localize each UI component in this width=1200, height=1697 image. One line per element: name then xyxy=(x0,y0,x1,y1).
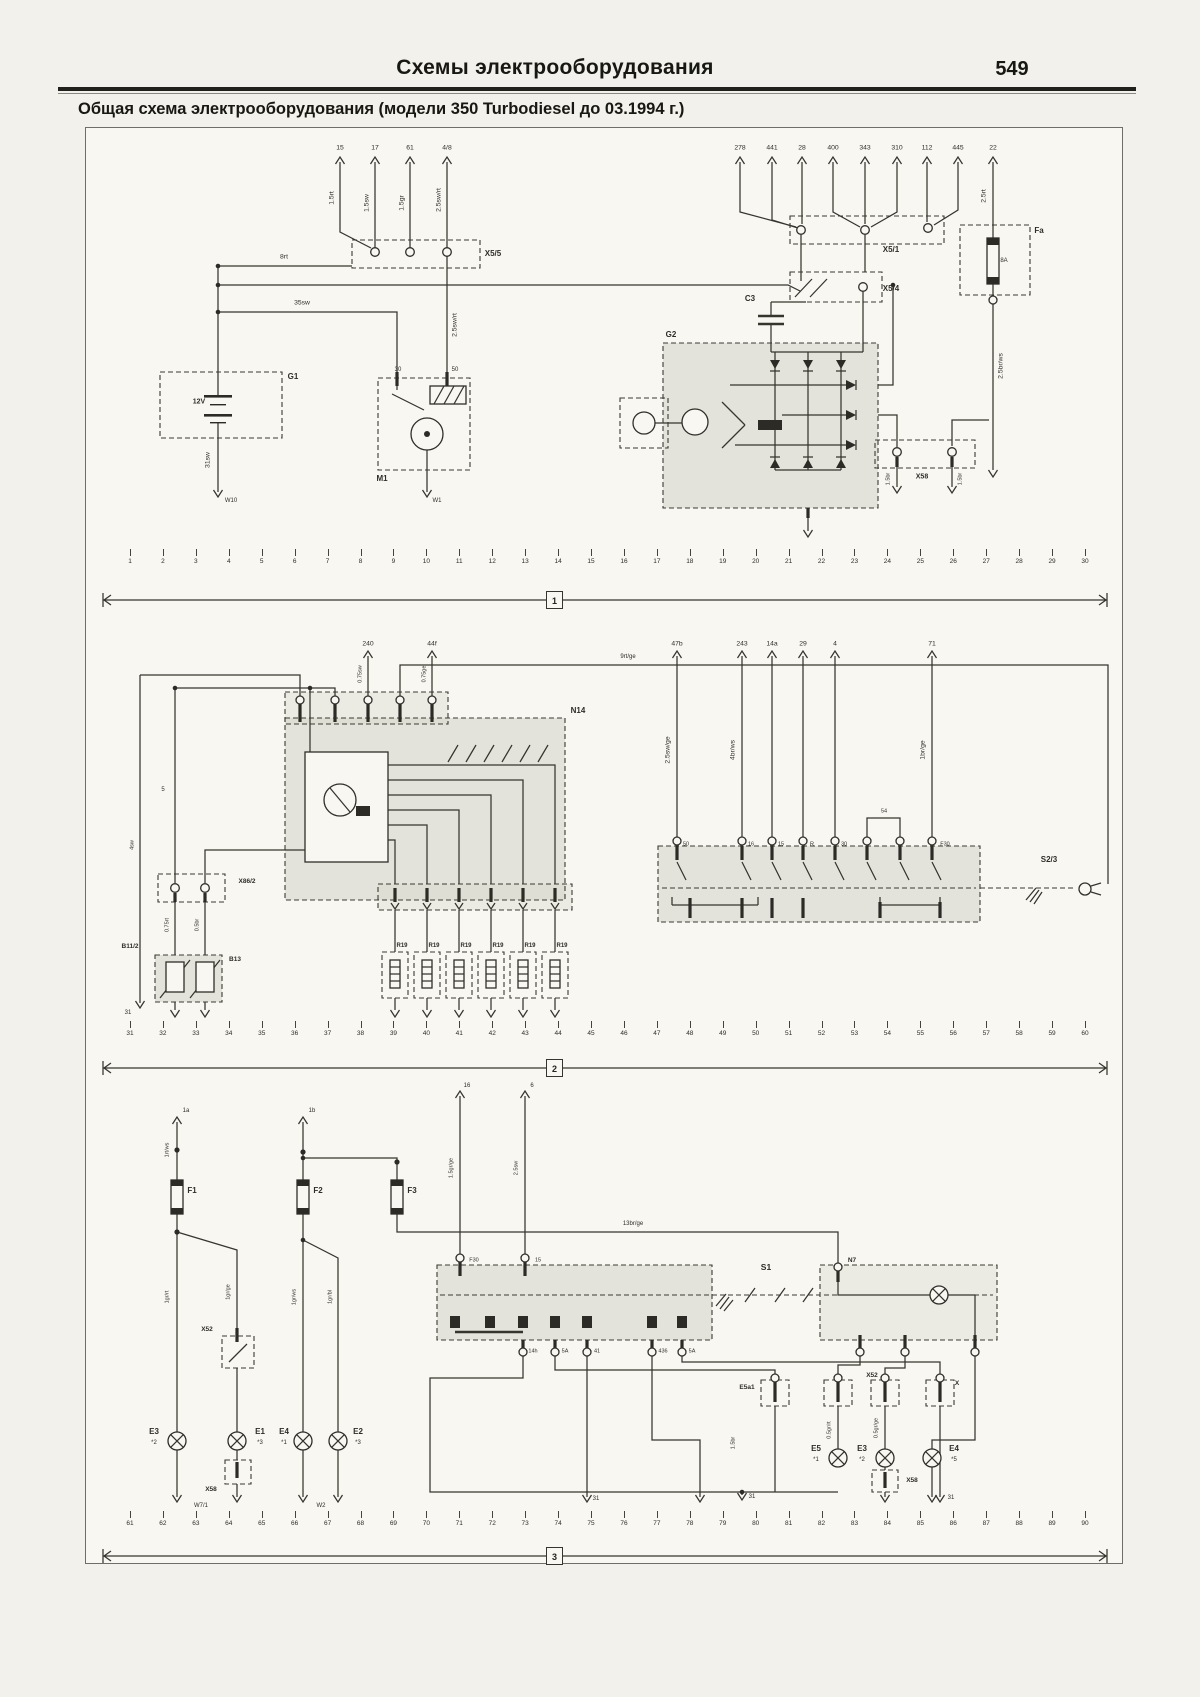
bus-tick xyxy=(756,1021,757,1028)
bus-number: 90 xyxy=(1081,1520,1088,1527)
bus-number: 55 xyxy=(917,1030,924,1037)
bus-number: 11 xyxy=(456,558,463,565)
bus-tick xyxy=(393,549,394,556)
bus-number: 12 xyxy=(489,558,496,565)
bus-number: 60 xyxy=(1081,1030,1088,1037)
bus-number: 67 xyxy=(324,1520,331,1527)
bus-number: 15 xyxy=(587,558,594,565)
bus-number: 16 xyxy=(620,558,627,565)
bus-tick xyxy=(1019,1021,1020,1028)
bus-number: 73 xyxy=(522,1520,529,1527)
bus-tick xyxy=(822,549,823,556)
bus-tick xyxy=(887,549,888,556)
bus-tick xyxy=(1052,1021,1053,1028)
bus-tick xyxy=(229,549,230,556)
bus-tick xyxy=(492,549,493,556)
bus-number: 1 xyxy=(128,558,132,565)
bus-number: 21 xyxy=(785,558,792,565)
bus-number: 77 xyxy=(653,1520,660,1527)
bus-tick xyxy=(459,1511,460,1518)
section-marker-2: 2 xyxy=(546,1059,563,1077)
bus-tick xyxy=(361,1021,362,1028)
bus-tick xyxy=(657,1021,658,1028)
bus-number: 78 xyxy=(686,1520,693,1527)
bus-number: 66 xyxy=(291,1520,298,1527)
bus-tick xyxy=(854,1511,855,1518)
bus-number: 62 xyxy=(159,1520,166,1527)
bus-tick xyxy=(854,1021,855,1028)
bus-tick xyxy=(328,1021,329,1028)
bus-tick xyxy=(558,1511,559,1518)
bus-number: 4 xyxy=(227,558,231,565)
bus-number: 22 xyxy=(818,558,825,565)
bus-tick xyxy=(591,1021,592,1028)
bus-number: 56 xyxy=(950,1030,957,1037)
bus-number: 76 xyxy=(620,1520,627,1527)
bus-number: 31 xyxy=(126,1030,133,1037)
bus-tick xyxy=(229,1021,230,1028)
wiring-diagram xyxy=(0,0,1200,1697)
bus-tick xyxy=(1052,1511,1053,1518)
bus-number: 58 xyxy=(1016,1030,1023,1037)
bus-number: 26 xyxy=(950,558,957,565)
bus-tick xyxy=(657,1511,658,1518)
bus-number: 74 xyxy=(554,1520,561,1527)
bus-tick xyxy=(789,549,790,556)
bus-number: 30 xyxy=(1081,558,1088,565)
section-marker-1: 1 xyxy=(546,591,563,609)
bus-tick xyxy=(591,549,592,556)
bus-number: 33 xyxy=(192,1030,199,1037)
bus-number: 14 xyxy=(554,558,561,565)
bus-tick xyxy=(459,1021,460,1028)
bus-number: 43 xyxy=(522,1030,529,1037)
bus-tick xyxy=(130,549,131,556)
bus-tick xyxy=(328,549,329,556)
bus-number: 2 xyxy=(161,558,165,565)
bus-number: 50 xyxy=(752,1030,759,1037)
bus-tick xyxy=(1019,549,1020,556)
bus-number: 9 xyxy=(392,558,396,565)
bus-number: 32 xyxy=(159,1030,166,1037)
bus-number: 47 xyxy=(653,1030,660,1037)
bus-tick xyxy=(295,549,296,556)
bus-number: 87 xyxy=(983,1520,990,1527)
bus-tick xyxy=(262,549,263,556)
bus-number: 34 xyxy=(225,1030,232,1037)
bus-tick xyxy=(295,1021,296,1028)
bus-number: 69 xyxy=(390,1520,397,1527)
bus-tick xyxy=(361,549,362,556)
bus-tick xyxy=(887,1511,888,1518)
bus-number: 18 xyxy=(686,558,693,565)
bus-strip-2: 3132333435363738394041424344454647484950… xyxy=(130,1021,1085,1043)
bus-number: 23 xyxy=(851,558,858,565)
bus-tick xyxy=(196,1511,197,1518)
bus-number: 29 xyxy=(1048,558,1055,565)
bus-tick xyxy=(459,549,460,556)
bus-number: 38 xyxy=(357,1030,364,1037)
bus-tick xyxy=(690,1511,691,1518)
bus-number: 37 xyxy=(324,1030,331,1037)
bus-tick xyxy=(756,549,757,556)
bus-tick xyxy=(723,1511,724,1518)
bus-number: 20 xyxy=(752,558,759,565)
bus-tick xyxy=(789,1511,790,1518)
section-marker-3: 3 xyxy=(546,1547,563,1565)
bus-number: 36 xyxy=(291,1030,298,1037)
bus-number: 85 xyxy=(917,1520,924,1527)
bus-tick xyxy=(426,1021,427,1028)
bus-tick xyxy=(986,1511,987,1518)
bus-number: 79 xyxy=(719,1520,726,1527)
bus-tick xyxy=(196,549,197,556)
bus-number: 7 xyxy=(326,558,330,565)
bus-tick xyxy=(558,549,559,556)
bus-number: 44 xyxy=(554,1030,561,1037)
bus-tick xyxy=(130,1511,131,1518)
bus-number: 71 xyxy=(456,1520,463,1527)
bus-number: 41 xyxy=(456,1030,463,1037)
bus-tick xyxy=(986,1021,987,1028)
bus-tick xyxy=(558,1021,559,1028)
bus-tick xyxy=(262,1511,263,1518)
bus-number: 84 xyxy=(884,1520,891,1527)
bus-tick xyxy=(822,1511,823,1518)
bus-number: 49 xyxy=(719,1030,726,1037)
bus-tick xyxy=(1085,549,1086,556)
bus-number: 52 xyxy=(818,1030,825,1037)
bus-number: 83 xyxy=(851,1520,858,1527)
bus-tick xyxy=(393,1511,394,1518)
bus-number: 70 xyxy=(423,1520,430,1527)
bus-number: 42 xyxy=(489,1030,496,1037)
bus-number: 39 xyxy=(390,1030,397,1037)
bus-number: 3 xyxy=(194,558,198,565)
bus-tick xyxy=(920,1511,921,1518)
bus-tick xyxy=(1019,1511,1020,1518)
bus-number: 88 xyxy=(1016,1520,1023,1527)
bus-number: 10 xyxy=(423,558,430,565)
bus-tick xyxy=(953,1021,954,1028)
bus-number: 63 xyxy=(192,1520,199,1527)
bus-tick xyxy=(624,549,625,556)
bus-tick xyxy=(361,1511,362,1518)
bus-tick xyxy=(426,549,427,556)
bus-number: 24 xyxy=(884,558,891,565)
bus-tick xyxy=(328,1511,329,1518)
bus-tick xyxy=(822,1021,823,1028)
bus-tick xyxy=(262,1021,263,1028)
bus-number: 51 xyxy=(785,1030,792,1037)
bus-number: 5 xyxy=(260,558,264,565)
bus-number: 57 xyxy=(983,1030,990,1037)
bus-number: 35 xyxy=(258,1030,265,1037)
bus-tick xyxy=(920,549,921,556)
bus-number: 53 xyxy=(851,1030,858,1037)
bus-tick xyxy=(591,1511,592,1518)
bus-number: 72 xyxy=(489,1520,496,1527)
bus-tick xyxy=(1085,1021,1086,1028)
bus-tick xyxy=(690,1021,691,1028)
bus-tick xyxy=(789,1021,790,1028)
bus-tick xyxy=(986,549,987,556)
bus-number: 17 xyxy=(653,558,660,565)
bus-number: 6 xyxy=(293,558,297,565)
bus-tick xyxy=(657,549,658,556)
bus-number: 46 xyxy=(620,1030,627,1037)
bus-number: 65 xyxy=(258,1520,265,1527)
bus-number: 68 xyxy=(357,1520,364,1527)
bus-tick xyxy=(624,1511,625,1518)
bus-tick xyxy=(525,549,526,556)
bus-tick xyxy=(624,1021,625,1028)
bus-tick xyxy=(1052,549,1053,556)
bus-tick xyxy=(163,549,164,556)
bus-tick xyxy=(920,1021,921,1028)
bus-number: 48 xyxy=(686,1030,693,1037)
bus-tick xyxy=(196,1021,197,1028)
bus-number: 81 xyxy=(785,1520,792,1527)
bus-tick xyxy=(756,1511,757,1518)
bus-number: 27 xyxy=(983,558,990,565)
bus-tick xyxy=(163,1021,164,1028)
bus-tick xyxy=(229,1511,230,1518)
bus-tick xyxy=(690,549,691,556)
bus-number: 75 xyxy=(587,1520,594,1527)
bus-tick xyxy=(723,1021,724,1028)
bus-number: 89 xyxy=(1048,1520,1055,1527)
bus-tick xyxy=(1085,1511,1086,1518)
bus-tick xyxy=(525,1511,526,1518)
bus-tick xyxy=(525,1021,526,1028)
bus-number: 8 xyxy=(359,558,363,565)
bus-strip-1: 1234567891011121314151617181920212223242… xyxy=(130,549,1085,571)
bus-tick xyxy=(492,1511,493,1518)
bus-number: 54 xyxy=(884,1030,891,1037)
bus-number: 45 xyxy=(587,1030,594,1037)
bus-number: 25 xyxy=(917,558,924,565)
bus-strip-3: 6162636465666768697071727374757677787980… xyxy=(130,1511,1085,1533)
bus-tick xyxy=(953,549,954,556)
bus-number: 61 xyxy=(126,1520,133,1527)
bus-number: 82 xyxy=(818,1520,825,1527)
bus-number: 86 xyxy=(950,1520,957,1527)
bus-number: 64 xyxy=(225,1520,232,1527)
bus-tick xyxy=(426,1511,427,1518)
bus-tick xyxy=(163,1511,164,1518)
bus-number: 80 xyxy=(752,1520,759,1527)
bus-number: 13 xyxy=(522,558,529,565)
bus-number: 19 xyxy=(719,558,726,565)
bus-tick xyxy=(953,1511,954,1518)
bus-number: 40 xyxy=(423,1030,430,1037)
bus-tick xyxy=(723,549,724,556)
bus-tick xyxy=(887,1021,888,1028)
bus-number: 28 xyxy=(1016,558,1023,565)
bus-tick xyxy=(295,1511,296,1518)
bus-number: 59 xyxy=(1048,1030,1055,1037)
bus-tick xyxy=(854,549,855,556)
bus-tick xyxy=(492,1021,493,1028)
bus-tick xyxy=(130,1021,131,1028)
bus-tick xyxy=(393,1021,394,1028)
